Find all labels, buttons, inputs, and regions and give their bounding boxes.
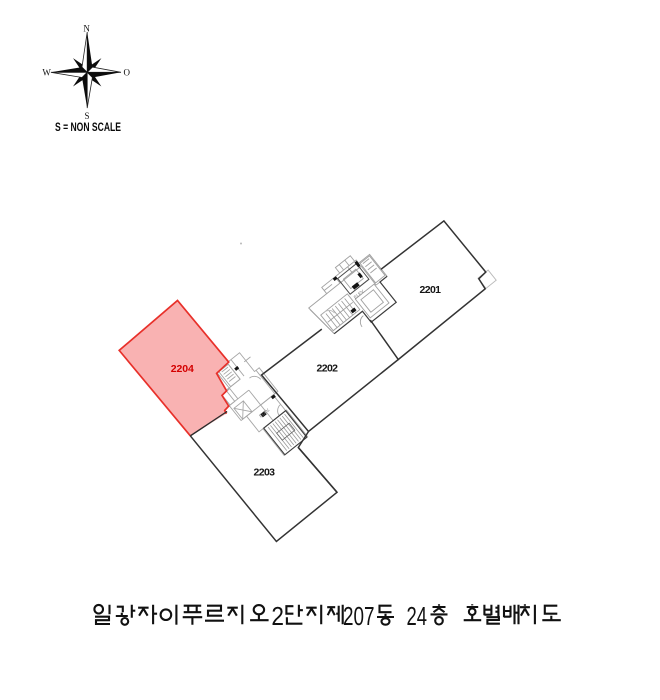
svg-text:207: 207 <box>343 601 375 631</box>
svg-text:O: O <box>124 68 131 78</box>
svg-text:S = NON SCALE: S = NON SCALE <box>55 122 121 134</box>
svg-text:24: 24 <box>407 601 428 631</box>
svg-text:2204: 2204 <box>171 363 194 375</box>
svg-text:W: W <box>42 68 51 78</box>
svg-text:2: 2 <box>271 601 284 631</box>
svg-text:N: N <box>83 23 90 33</box>
svg-text:S: S <box>84 111 89 121</box>
svg-text:2202: 2202 <box>317 363 339 375</box>
svg-text:2201: 2201 <box>420 284 442 296</box>
svg-text:2203: 2203 <box>254 467 276 479</box>
